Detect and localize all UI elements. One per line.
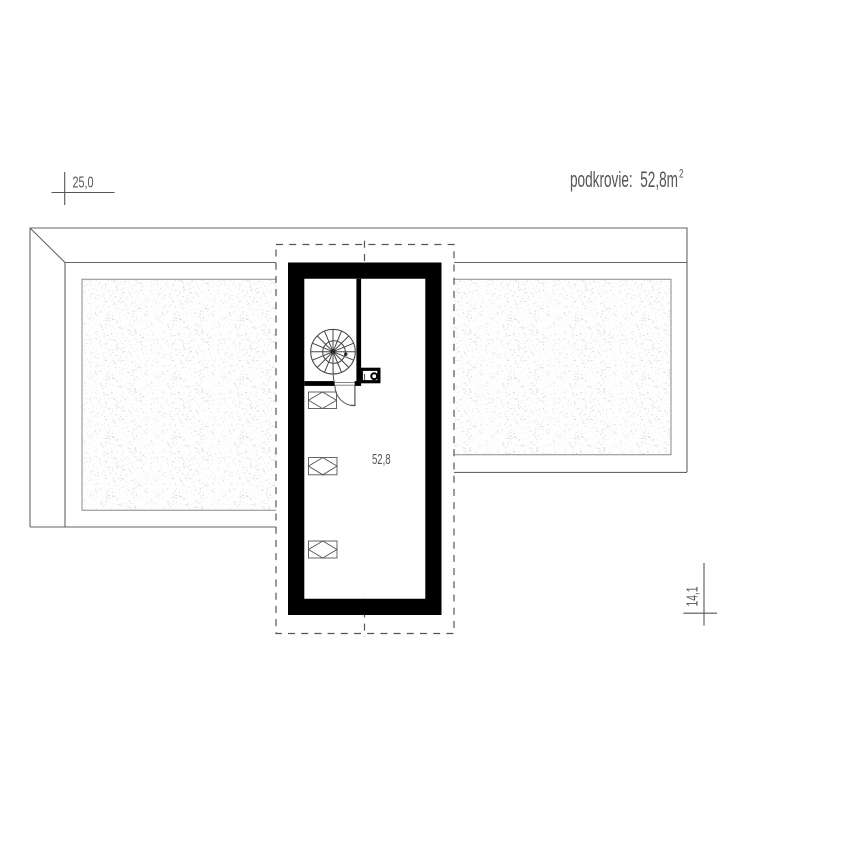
svg-text:podkrovie: 52,8m: podkrovie: 52,8m: [570, 167, 678, 192]
svg-text:25,0: 25,0: [73, 175, 94, 192]
svg-text:14,1: 14,1: [685, 586, 702, 606]
svg-text:2: 2: [679, 169, 684, 181]
svg-text:52,8: 52,8: [372, 452, 391, 468]
